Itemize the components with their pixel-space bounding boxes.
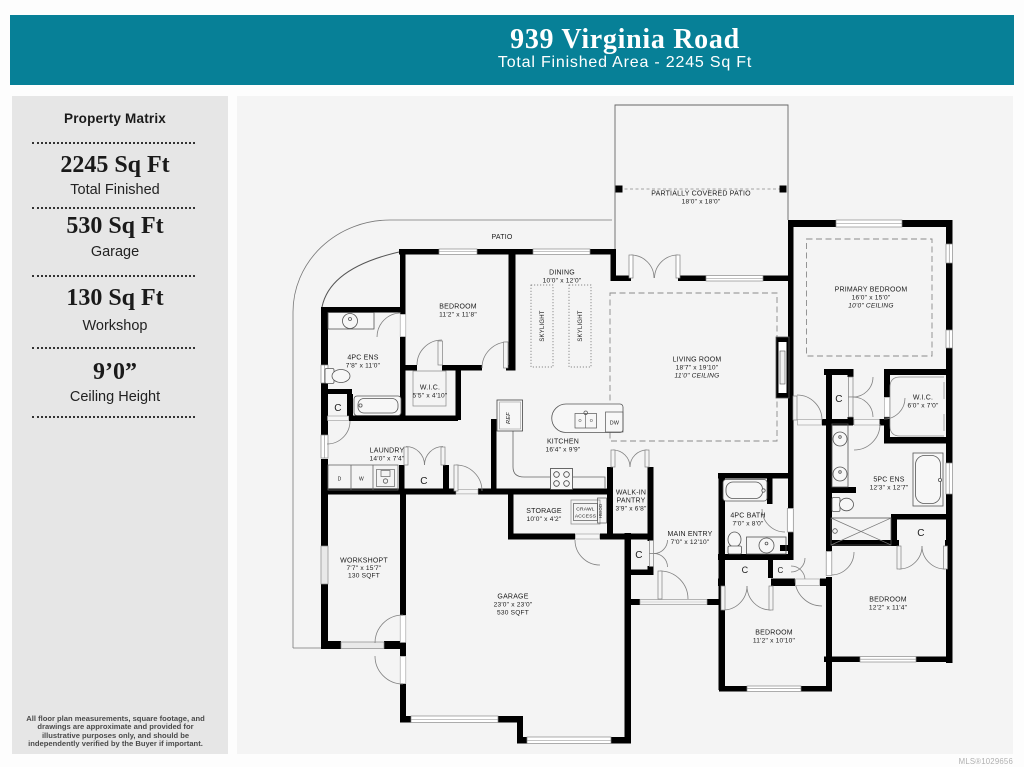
svg-text:PARTIALLY COVERED PATIO: PARTIALLY COVERED PATIO xyxy=(651,191,751,198)
svg-text:7'8" x 11'0": 7'8" x 11'0" xyxy=(346,363,381,370)
svg-text:7'7" x 15'7": 7'7" x 15'7" xyxy=(347,565,382,572)
svg-text:11'2" x 11'8": 11'2" x 11'8" xyxy=(439,312,477,319)
svg-text:14'0" x 7'4": 14'0" x 7'4" xyxy=(370,456,405,463)
svg-text:11'2" x 10'10": 11'2" x 10'10" xyxy=(753,638,796,645)
svg-text:C: C xyxy=(635,550,642,561)
svg-text:3'9" x 6'8": 3'9" x 6'8" xyxy=(615,506,646,513)
svg-text:7'0" x 12'10": 7'0" x 12'10" xyxy=(671,539,710,546)
svg-text:REF: REF xyxy=(506,412,512,424)
svg-text:10'0" CEILING: 10'0" CEILING xyxy=(848,303,893,310)
svg-text:10'0" x 12'0": 10'0" x 12'0" xyxy=(543,278,582,285)
svg-text:130 SQFT: 130 SQFT xyxy=(348,573,380,580)
svg-text:PRIMARY BEDROOM: PRIMARY BEDROOM xyxy=(835,287,908,294)
svg-text:12'3" x 12'7": 12'3" x 12'7" xyxy=(870,485,909,492)
svg-text:C: C xyxy=(778,566,784,575)
svg-text:LIVING ROOM: LIVING ROOM xyxy=(673,357,722,364)
svg-text:6'0" x 7'0": 6'0" x 7'0" xyxy=(907,403,938,410)
svg-text:18'0" x 18'0": 18'0" x 18'0" xyxy=(682,199,721,206)
svg-text:7'0" x 8'0": 7'0" x 8'0" xyxy=(732,521,763,528)
svg-text:SKYLIGHT: SKYLIGHT xyxy=(540,310,546,341)
svg-text:DINING: DINING xyxy=(549,270,575,277)
svg-text:D: D xyxy=(338,477,342,483)
svg-text:WORKSHOPT: WORKSHOPT xyxy=(340,558,388,565)
svg-text:W.I.C.: W.I.C. xyxy=(420,385,440,392)
svg-text:DW: DW xyxy=(610,421,620,427)
svg-text:5PC ENS: 5PC ENS xyxy=(873,477,904,484)
svg-text:C: C xyxy=(334,403,341,414)
svg-text:16'4" x 9'9": 16'4" x 9'9" xyxy=(546,447,581,454)
svg-text:ACCESS: ACCESS xyxy=(575,514,597,520)
svg-text:4PC BATH: 4PC BATH xyxy=(730,513,765,520)
svg-text:W.I.C.: W.I.C. xyxy=(913,395,933,402)
svg-text:10'0" x 4'2": 10'0" x 4'2" xyxy=(527,516,562,523)
svg-text:C: C xyxy=(917,528,924,539)
svg-text:4PC ENS: 4PC ENS xyxy=(347,355,378,362)
svg-text:BEDROOM: BEDROOM xyxy=(869,597,907,604)
svg-text:SKYLIGHT: SKYLIGHT xyxy=(578,310,584,341)
svg-text:C: C xyxy=(742,565,749,575)
svg-text:PANTRY: PANTRY xyxy=(617,498,646,505)
svg-text:16'0" x 15'0": 16'0" x 15'0" xyxy=(852,295,891,302)
svg-text:LAUNDRY: LAUNDRY xyxy=(370,448,405,455)
svg-text:530 SQFT: 530 SQFT xyxy=(497,610,529,617)
svg-text:C: C xyxy=(835,394,842,405)
svg-text:PATIO: PATIO xyxy=(492,234,513,241)
svg-text:WALK-IN: WALK-IN xyxy=(616,490,646,497)
svg-text:CRAWL: CRAWL xyxy=(576,507,595,513)
svg-text:BEDROOM: BEDROOM xyxy=(439,304,477,311)
svg-text:KITCHEN: KITCHEN xyxy=(547,439,579,446)
svg-text:BEDROOM: BEDROOM xyxy=(755,630,793,637)
svg-text:5'5" x 4'10": 5'5" x 4'10" xyxy=(413,393,448,400)
svg-text:STORAGE: STORAGE xyxy=(526,508,562,515)
svg-text:MAIN ENTRY: MAIN ENTRY xyxy=(667,531,712,538)
svg-text:18'7" x 19'10": 18'7" x 19'10" xyxy=(676,365,719,372)
svg-text:W: W xyxy=(359,477,364,483)
svg-text:12'2" x 11'4": 12'2" x 11'4" xyxy=(869,605,908,612)
svg-text:HWOD: HWOD xyxy=(598,504,603,519)
svg-text:GARAGE: GARAGE xyxy=(497,594,528,601)
svg-text:23'0" x 23'0": 23'0" x 23'0" xyxy=(494,602,533,609)
svg-text:C: C xyxy=(420,476,427,487)
svg-text:11'0" CEILING: 11'0" CEILING xyxy=(675,373,720,380)
